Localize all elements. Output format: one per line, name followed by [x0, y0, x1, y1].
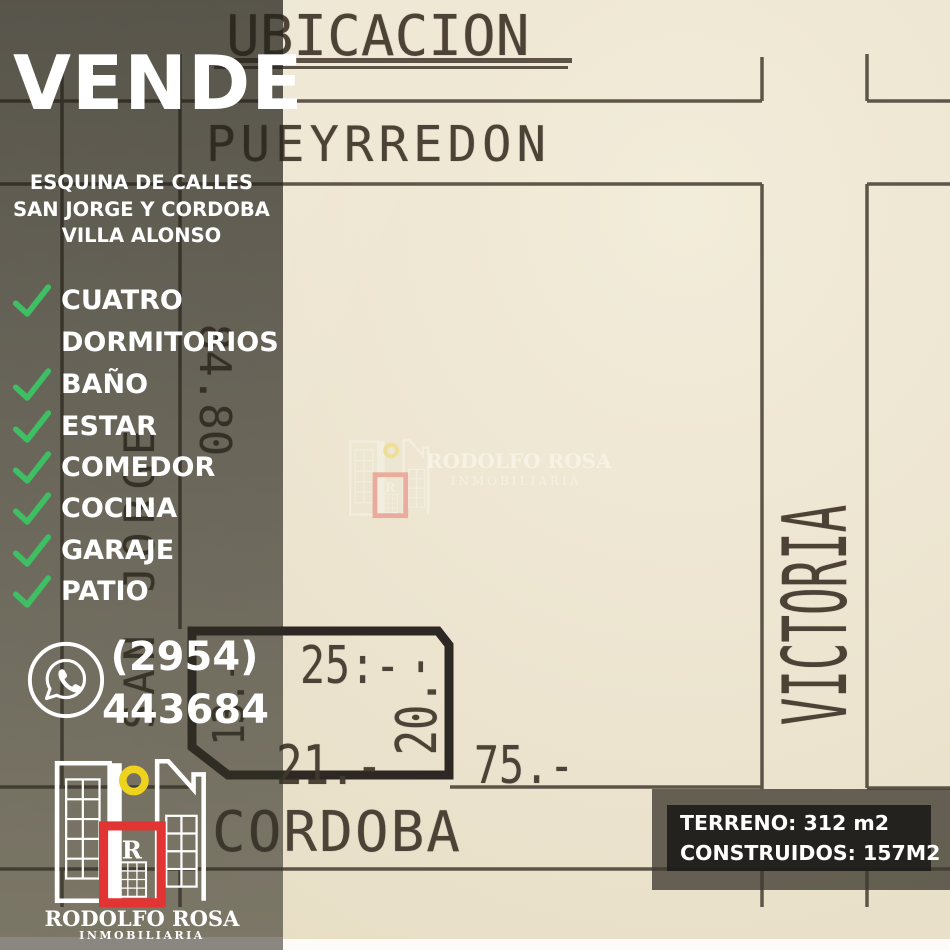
- address-line-3: VILLA ALONSO: [8, 223, 275, 250]
- feature-row: CUATRO: [12, 283, 183, 318]
- feature-label: BAÑO: [61, 369, 148, 400]
- brand-tagline: INMOBILIARIA: [32, 929, 252, 942]
- feature-row: COCINA: [12, 491, 177, 526]
- phone-number: (2954) 443684: [102, 631, 267, 737]
- flyer: UBICACION PUEYRREDON VICTORIA SAN JORGE …: [0, 0, 950, 950]
- checkmark-icon: [12, 574, 52, 609]
- watermark-name: RODOLFO ROSA: [426, 449, 606, 473]
- brand-name: RODOLFO ROSA: [32, 906, 252, 931]
- feature-label: GARAJE: [61, 535, 174, 566]
- whatsapp-icon: [25, 639, 107, 721]
- street-victoria: VICTORIA: [761, 501, 871, 730]
- brand-logo: R: [53, 753, 233, 911]
- feature-label: DORMITORIOS: [61, 327, 279, 358]
- watermark-tagline: INMOBILIARIA: [426, 474, 606, 488]
- address-block: ESQUINA DE CALLES SAN JORGE Y CORDOBA VI…: [8, 170, 275, 250]
- headline: VENDE: [13, 46, 304, 121]
- feature-row: GARAJE: [12, 533, 174, 568]
- feature-label: CUATRO: [61, 285, 183, 316]
- sidebar-overlay: VENDE ESQUINA DE CALLES SAN JORGE Y CORD…: [0, 0, 283, 937]
- phone-digits: 443684: [102, 684, 267, 737]
- address-line-2: SAN JORGE Y CORDOBA: [8, 197, 275, 224]
- svg-text:R: R: [122, 835, 143, 864]
- checkmark-icon: [12, 491, 52, 526]
- feature-label: ESTAR: [61, 411, 157, 442]
- phone-area-code: (2954): [102, 631, 267, 684]
- feature-label: COCINA: [61, 493, 177, 524]
- measure-plot-right: 20.-: [383, 655, 453, 756]
- info-box: TERRENO: 312 m2 CONSTRUIDOS: 157M2: [652, 789, 950, 890]
- feature-row: COMEDOR: [12, 450, 215, 485]
- bottom-strip-right: [283, 939, 950, 950]
- feature-label: COMEDOR: [61, 452, 215, 483]
- address-line-1: ESQUINA DE CALLES: [8, 170, 275, 197]
- feature-row: PATIO: [12, 574, 149, 609]
- terreno-value: TERRENO: 312 m2: [680, 808, 918, 838]
- feature-row: BAÑO: [12, 367, 148, 402]
- measure-cordoba-frontage: 75.-: [474, 736, 574, 796]
- checkmark-icon: [12, 283, 52, 318]
- checkmark-icon: [12, 367, 52, 402]
- measure-plot-bottom: 21.-: [276, 734, 383, 797]
- construidos-value: CONSTRUIDOS: 157M2: [680, 838, 918, 868]
- checkmark-icon: [12, 409, 52, 444]
- check-spacer: [12, 325, 52, 360]
- info-box-inner: TERRENO: 312 m2 CONSTRUIDOS: 157M2: [667, 805, 931, 871]
- feature-row: DORMITORIOS: [12, 325, 279, 360]
- checkmark-icon: [12, 450, 52, 485]
- yellow-dot-icon: [123, 769, 145, 791]
- feature-row: ESTAR: [12, 409, 157, 444]
- feature-label: PATIO: [61, 576, 149, 607]
- checkmark-icon: [12, 533, 52, 568]
